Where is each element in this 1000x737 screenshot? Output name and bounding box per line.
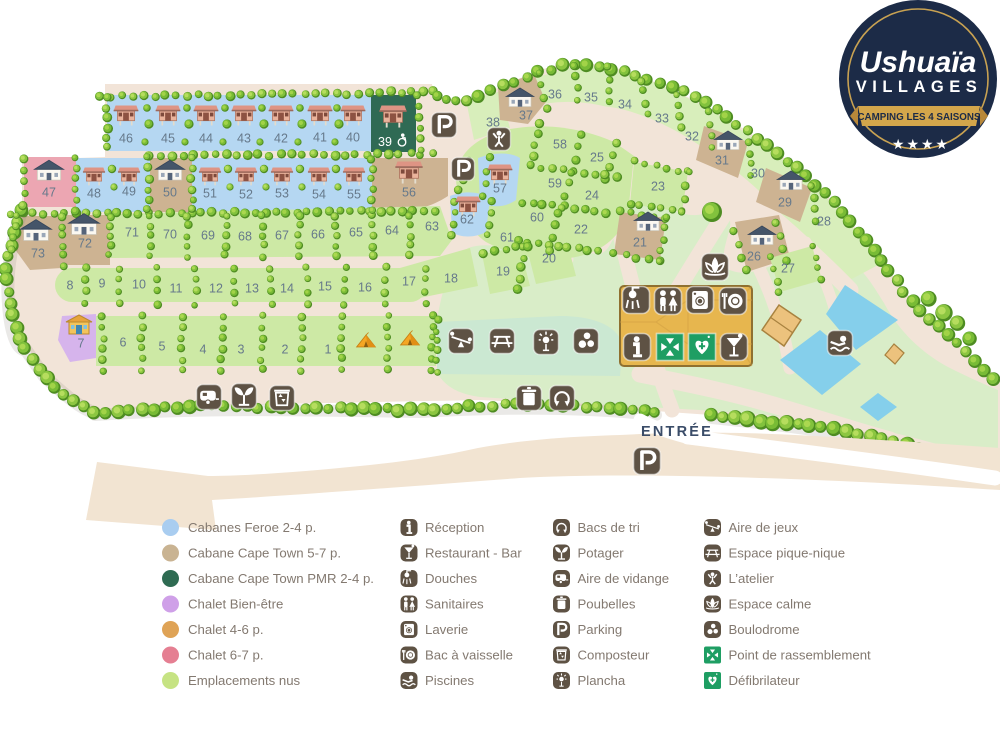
svg-text:17: 17	[402, 275, 416, 289]
svg-text:9: 9	[99, 277, 106, 291]
svg-text:44: 44	[199, 132, 213, 146]
svg-text:Parking: Parking	[578, 622, 623, 637]
svg-text:Chalet Bien-être: Chalet Bien-être	[188, 597, 283, 612]
svg-text:Potager: Potager	[578, 546, 625, 561]
svg-text:★★★★: ★★★★	[892, 136, 950, 152]
svg-text:50: 50	[163, 186, 177, 200]
svg-text:15: 15	[318, 280, 332, 294]
svg-text:47: 47	[42, 186, 56, 200]
svg-text:Bac à vaisselle: Bac à vaisselle	[425, 648, 513, 663]
svg-text:6: 6	[120, 336, 127, 350]
svg-text:Cabanes Feroe 2-4 p.: Cabanes Feroe 2-4 p.	[188, 520, 316, 535]
svg-text:Boulodrome: Boulodrome	[729, 622, 800, 637]
svg-text:35: 35	[584, 91, 598, 105]
svg-text:12: 12	[209, 282, 223, 296]
svg-text:38: 38	[486, 116, 500, 130]
svg-text:56: 56	[402, 186, 416, 200]
svg-text:49: 49	[122, 185, 136, 199]
svg-text:46: 46	[119, 132, 133, 146]
svg-text:57: 57	[493, 182, 507, 196]
svg-text:73: 73	[31, 247, 45, 261]
svg-text:Piscines: Piscines	[425, 673, 475, 688]
svg-text:41: 41	[313, 131, 327, 145]
svg-text:Point de rassemblement: Point de rassemblement	[729, 648, 872, 663]
svg-text:39: 39	[378, 135, 392, 149]
svg-text:Espace pique-nique: Espace pique-nique	[729, 546, 846, 561]
svg-text:26: 26	[747, 250, 761, 264]
svg-text:7: 7	[78, 337, 85, 351]
svg-text:Cabane Cape Town 5-7 p.: Cabane Cape Town 5-7 p.	[188, 546, 341, 561]
svg-text:Ushuaïa: Ushuaïa	[860, 46, 977, 79]
svg-text:31: 31	[715, 154, 729, 168]
svg-text:1: 1	[325, 343, 332, 357]
svg-text:Emplacements nus: Emplacements nus	[188, 673, 301, 688]
svg-text:VILLAGES: VILLAGES	[856, 78, 983, 96]
svg-text:62: 62	[460, 213, 474, 227]
svg-text:18: 18	[444, 272, 458, 286]
svg-text:ENTRÉE: ENTRÉE	[641, 423, 713, 440]
svg-text:64: 64	[385, 224, 399, 238]
svg-text:14: 14	[280, 282, 294, 296]
svg-text:11: 11	[170, 282, 183, 296]
svg-text:Espace calme: Espace calme	[729, 597, 812, 612]
svg-text:Aire de vidange: Aire de vidange	[578, 571, 670, 586]
svg-text:19: 19	[496, 265, 510, 279]
svg-text:21: 21	[633, 236, 647, 250]
svg-text:59: 59	[548, 177, 562, 191]
svg-text:34: 34	[618, 98, 632, 112]
svg-text:29: 29	[778, 196, 792, 210]
svg-text:60: 60	[530, 211, 544, 225]
svg-text:53: 53	[275, 187, 289, 201]
svg-text:Poubelles: Poubelles	[578, 597, 636, 612]
svg-text:70: 70	[163, 228, 177, 242]
svg-text:23: 23	[651, 180, 665, 194]
svg-text:66: 66	[311, 228, 325, 242]
svg-text:Sanitaires: Sanitaires	[425, 597, 484, 612]
svg-text:10: 10	[132, 278, 146, 292]
svg-text:Laverie: Laverie	[425, 622, 468, 637]
svg-text:Défibrilateur: Défibrilateur	[729, 673, 801, 688]
svg-text:Chalet 6-7 p.: Chalet 6-7 p.	[188, 648, 264, 663]
svg-text:61: 61	[500, 231, 514, 245]
svg-text:42: 42	[274, 132, 288, 146]
svg-text:CAMPING LES 4 SAISONS: CAMPING LES 4 SAISONS	[857, 112, 980, 123]
svg-text:25: 25	[590, 151, 604, 165]
svg-text:65: 65	[349, 226, 363, 240]
svg-text:16: 16	[358, 281, 372, 295]
svg-text:48: 48	[87, 187, 101, 201]
svg-text:72: 72	[78, 237, 92, 251]
svg-text:43: 43	[237, 132, 251, 146]
svg-text:4: 4	[200, 343, 207, 357]
svg-text:2: 2	[282, 343, 289, 357]
svg-text:Plancha: Plancha	[578, 673, 626, 688]
svg-text:Restaurant - Bar: Restaurant - Bar	[425, 546, 522, 561]
svg-text:40: 40	[346, 131, 360, 145]
svg-text:Bacs de tri: Bacs de tri	[578, 520, 640, 535]
svg-text:5: 5	[159, 340, 166, 354]
svg-text:37: 37	[519, 109, 533, 123]
svg-text:L’atelier: L’atelier	[729, 571, 775, 586]
svg-text:13: 13	[245, 282, 259, 296]
svg-text:8: 8	[67, 279, 74, 293]
svg-text:24: 24	[585, 189, 599, 203]
svg-text:67: 67	[275, 229, 289, 243]
svg-text:20: 20	[542, 252, 556, 266]
svg-text:36: 36	[548, 88, 562, 102]
svg-text:68: 68	[238, 230, 252, 244]
svg-text:54: 54	[312, 188, 326, 202]
svg-text:3: 3	[238, 343, 245, 357]
svg-text:71: 71	[125, 226, 139, 240]
svg-text:33: 33	[655, 112, 669, 126]
svg-text:Aire de jeux: Aire de jeux	[729, 520, 799, 535]
svg-text:22: 22	[574, 223, 588, 237]
svg-text:Cabane Cape Town PMR 2-4 p.: Cabane Cape Town PMR 2-4 p.	[188, 571, 374, 586]
svg-text:52: 52	[239, 188, 253, 202]
svg-text:51: 51	[203, 187, 217, 201]
svg-text:45: 45	[161, 132, 175, 146]
svg-text:27: 27	[781, 262, 795, 276]
svg-text:63: 63	[425, 220, 439, 234]
svg-text:55: 55	[347, 188, 361, 202]
svg-text:69: 69	[201, 229, 215, 243]
svg-text:28: 28	[817, 215, 831, 229]
svg-text:Réception: Réception	[425, 520, 484, 535]
svg-text:32: 32	[685, 130, 699, 144]
svg-text:Douches: Douches	[425, 571, 477, 586]
svg-text:Chalet 4-6 p.: Chalet 4-6 p.	[188, 622, 264, 637]
svg-text:Composteur: Composteur	[578, 648, 650, 663]
svg-text:30: 30	[751, 167, 765, 181]
svg-text:58: 58	[553, 138, 567, 152]
